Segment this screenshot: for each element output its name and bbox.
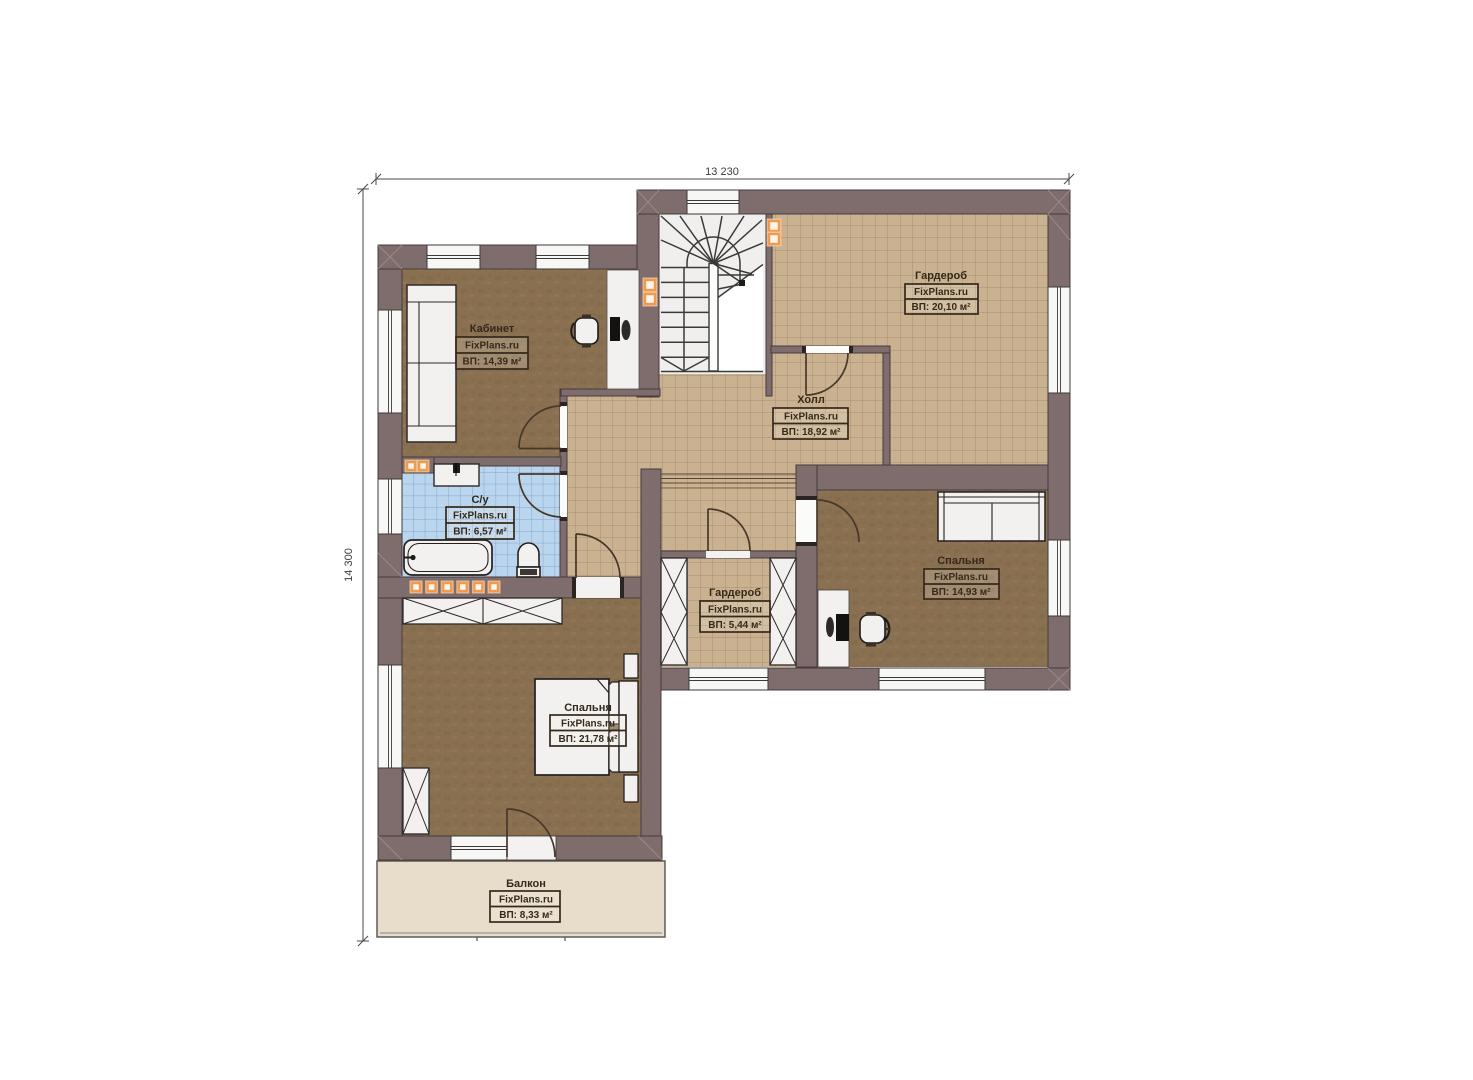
- svg-text:Балкон: Балкон: [506, 878, 546, 890]
- svg-text:ВП: 20,10 м²: ВП: 20,10 м²: [911, 302, 971, 313]
- svg-text:FixPlans.ru: FixPlans.ru: [784, 411, 838, 422]
- svg-text:Гардероб: Гардероб: [709, 587, 761, 599]
- svg-text:Холл: Холл: [797, 394, 825, 406]
- svg-text:FixPlans.ru: FixPlans.ru: [708, 604, 762, 615]
- svg-text:Спальня: Спальня: [937, 555, 985, 567]
- svg-text:С/у: С/у: [471, 494, 489, 506]
- svg-text:Кабинет: Кабинет: [470, 323, 515, 335]
- svg-text:ВП: 5,44 м²: ВП: 5,44 м²: [708, 620, 762, 631]
- svg-text:Гардероб: Гардероб: [915, 270, 967, 282]
- svg-text:ВП: 21,78 м²: ВП: 21,78 м²: [558, 734, 618, 745]
- svg-text:ВП: 8,33 м²: ВП: 8,33 м²: [499, 910, 553, 921]
- svg-text:ВП: 14,39 м²: ВП: 14,39 м²: [462, 357, 522, 368]
- svg-text:ВП: 14,93 м²: ВП: 14,93 м²: [931, 587, 991, 598]
- svg-text:FixPlans.ru: FixPlans.ru: [934, 572, 988, 583]
- svg-text:FixPlans.ru: FixPlans.ru: [465, 341, 519, 352]
- svg-text:ВП: 18,92 м²: ВП: 18,92 м²: [781, 427, 841, 438]
- svg-text:FixPlans.ru: FixPlans.ru: [914, 287, 968, 298]
- svg-text:FixPlans.ru: FixPlans.ru: [453, 511, 507, 522]
- svg-text:FixPlans.ru: FixPlans.ru: [561, 718, 615, 729]
- svg-text:14 300: 14 300: [343, 548, 355, 582]
- svg-text:ВП: 6,57 м²: ВП: 6,57 м²: [453, 527, 507, 538]
- svg-text:Спальня: Спальня: [564, 702, 612, 714]
- svg-text:13 230: 13 230: [705, 166, 739, 178]
- svg-text:FixPlans.ru: FixPlans.ru: [499, 894, 553, 905]
